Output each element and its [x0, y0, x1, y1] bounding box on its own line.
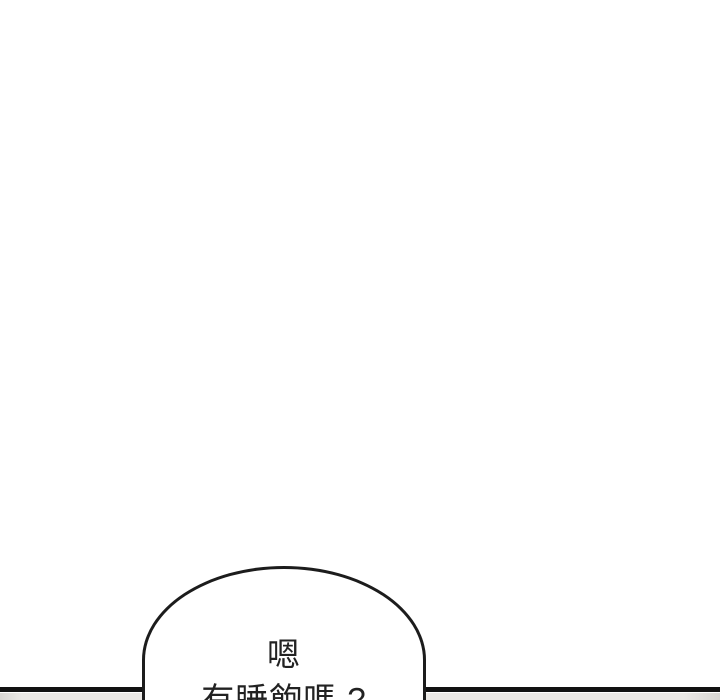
bubble-text-line1: 嗯 — [145, 632, 423, 677]
bubble-text-line2: 有睡飽嗎 ? — [145, 677, 423, 700]
speech-bubble: 嗯 有睡飽嗎 ? — [142, 566, 426, 700]
speech-bubble-text: 嗯 有睡飽嗎 ? — [145, 632, 423, 700]
comic-panel: 嗯 有睡飽嗎 ? — [0, 0, 720, 700]
